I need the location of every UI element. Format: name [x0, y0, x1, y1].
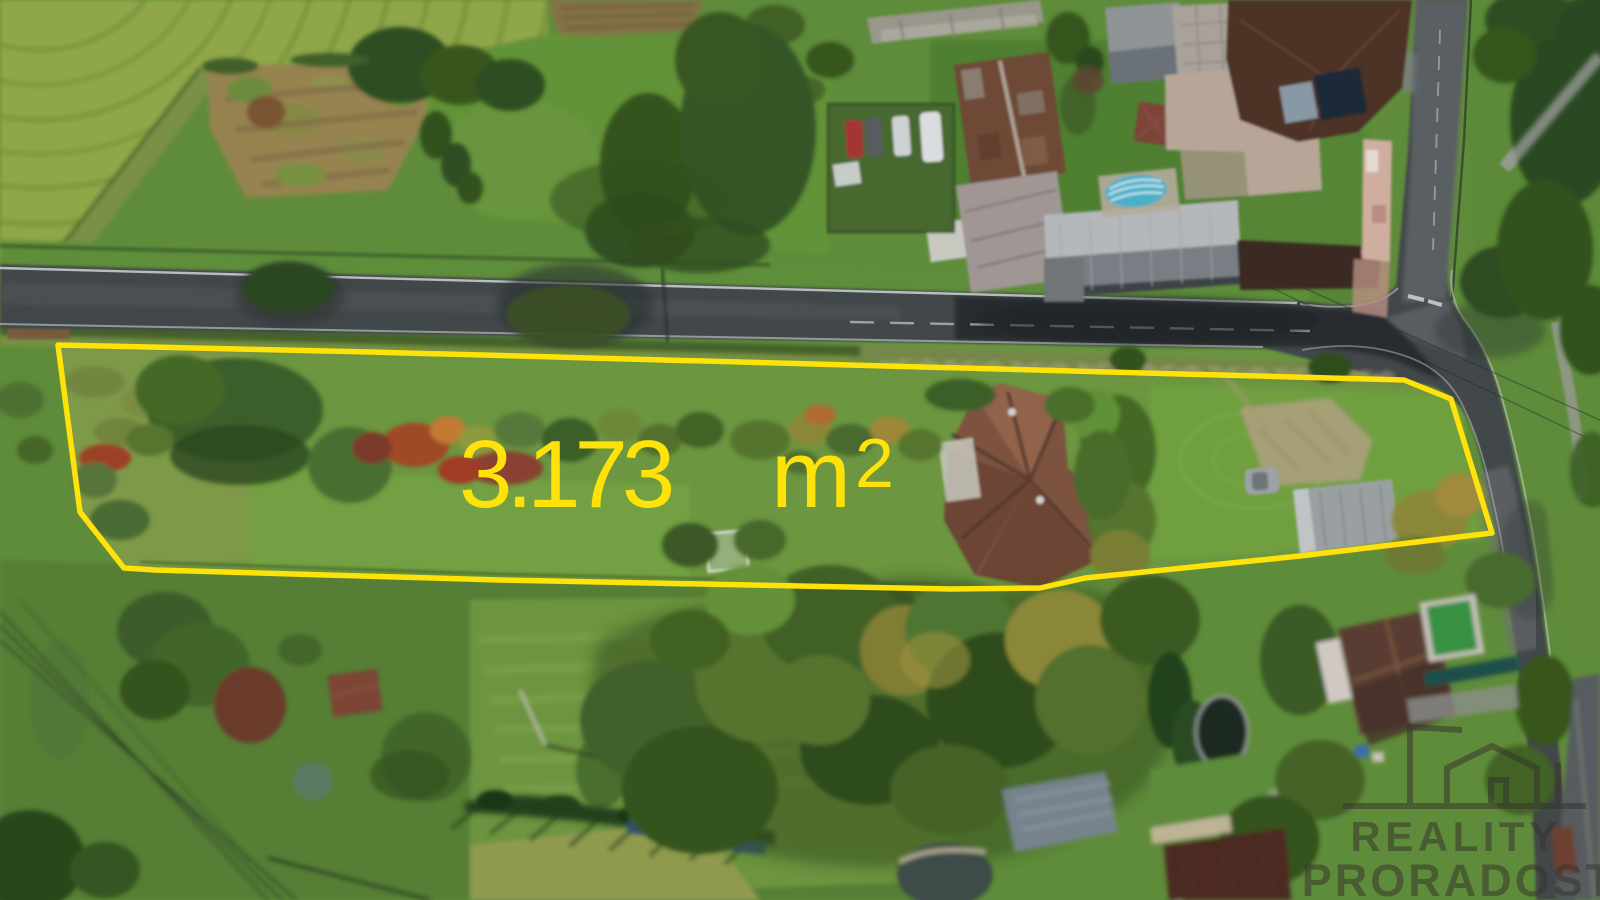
svg-text:PRORADOST: PRORADOST [1302, 855, 1600, 900]
svg-text:REALITY: REALITY [1350, 813, 1561, 860]
svg-text:3.173: 3.173 [459, 421, 672, 528]
